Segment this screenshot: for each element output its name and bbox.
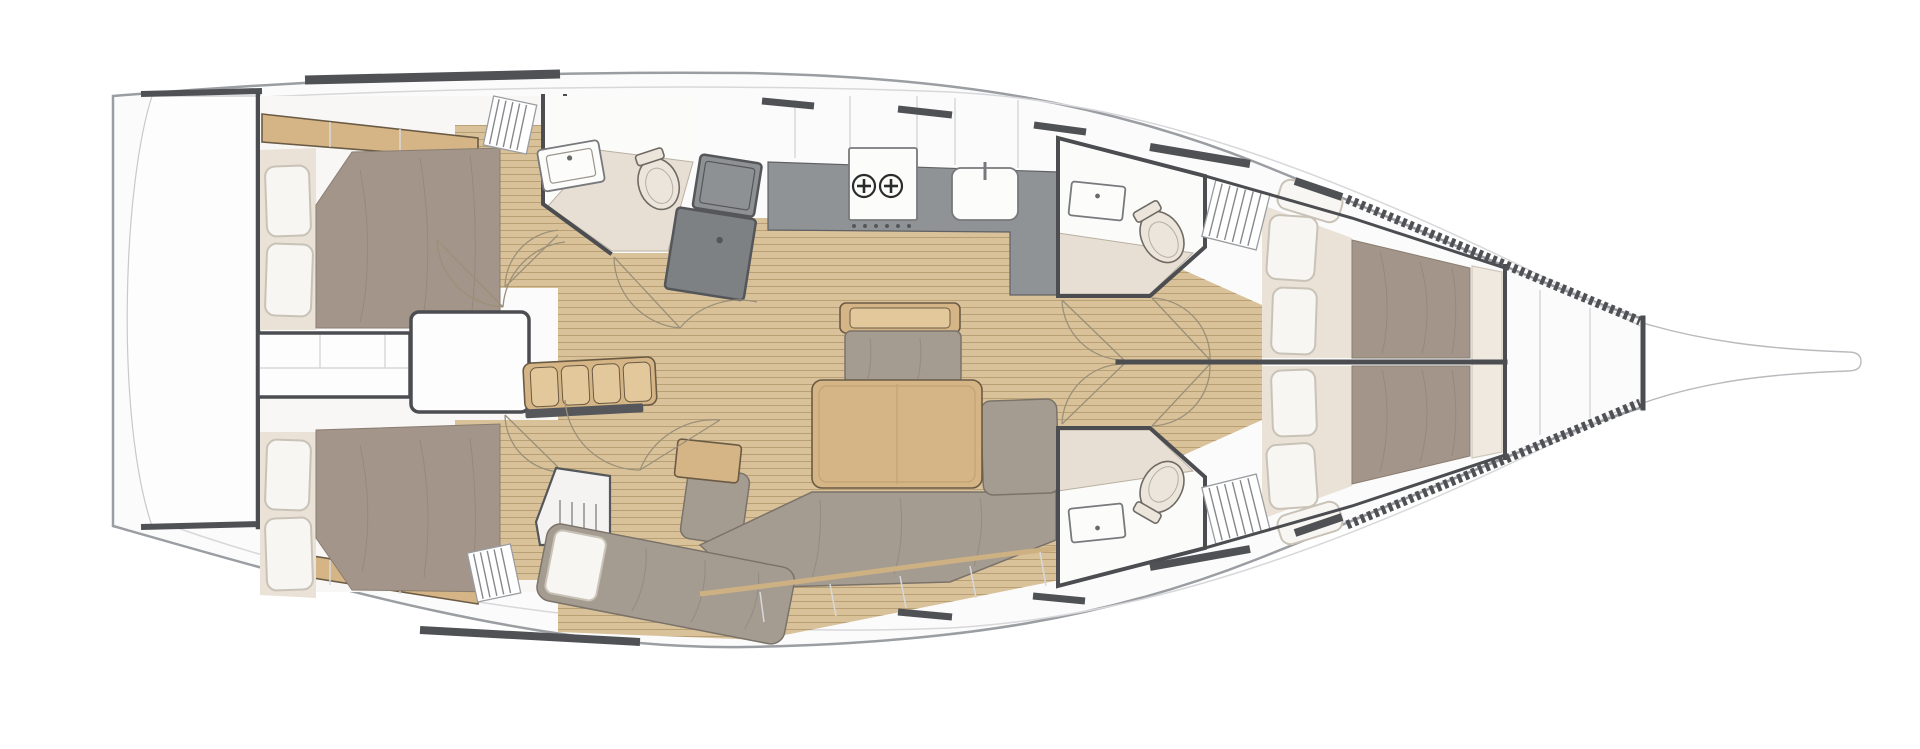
swim-platform (127, 96, 258, 526)
stern-rail-top (141, 91, 262, 94)
slatted-settee (523, 357, 658, 419)
dinette-bench (840, 303, 961, 383)
salon-table (812, 380, 982, 488)
bowsprit (1643, 323, 1861, 403)
aft-cabin-starboard (260, 397, 565, 604)
sofa-right-arm (980, 399, 1059, 496)
pillow (1266, 214, 1318, 281)
head-sink (1068, 503, 1125, 542)
pillow (1271, 369, 1317, 436)
floorplan-canvas (0, 0, 1920, 749)
companionway-well (411, 312, 529, 412)
stern-rail-bottom (141, 524, 262, 527)
pillow (1271, 287, 1317, 354)
side-table (674, 439, 742, 483)
pillow (265, 517, 313, 591)
between-cabin-box (258, 333, 410, 397)
pillow (265, 439, 311, 510)
yacht-floorplan (0, 0, 1920, 749)
pillow (265, 165, 311, 236)
pillow (544, 529, 607, 602)
pillow (265, 243, 313, 317)
handrail (898, 612, 952, 617)
head-sink (1068, 181, 1125, 220)
coachroof-rail (305, 74, 560, 80)
transom (127, 91, 262, 527)
handrail (762, 101, 814, 106)
galley-sink (952, 162, 1018, 220)
handrail (1033, 596, 1085, 601)
louvered-locker (467, 544, 520, 602)
stove (849, 148, 917, 220)
louvered-locker (483, 96, 536, 154)
pillow (1266, 442, 1318, 509)
